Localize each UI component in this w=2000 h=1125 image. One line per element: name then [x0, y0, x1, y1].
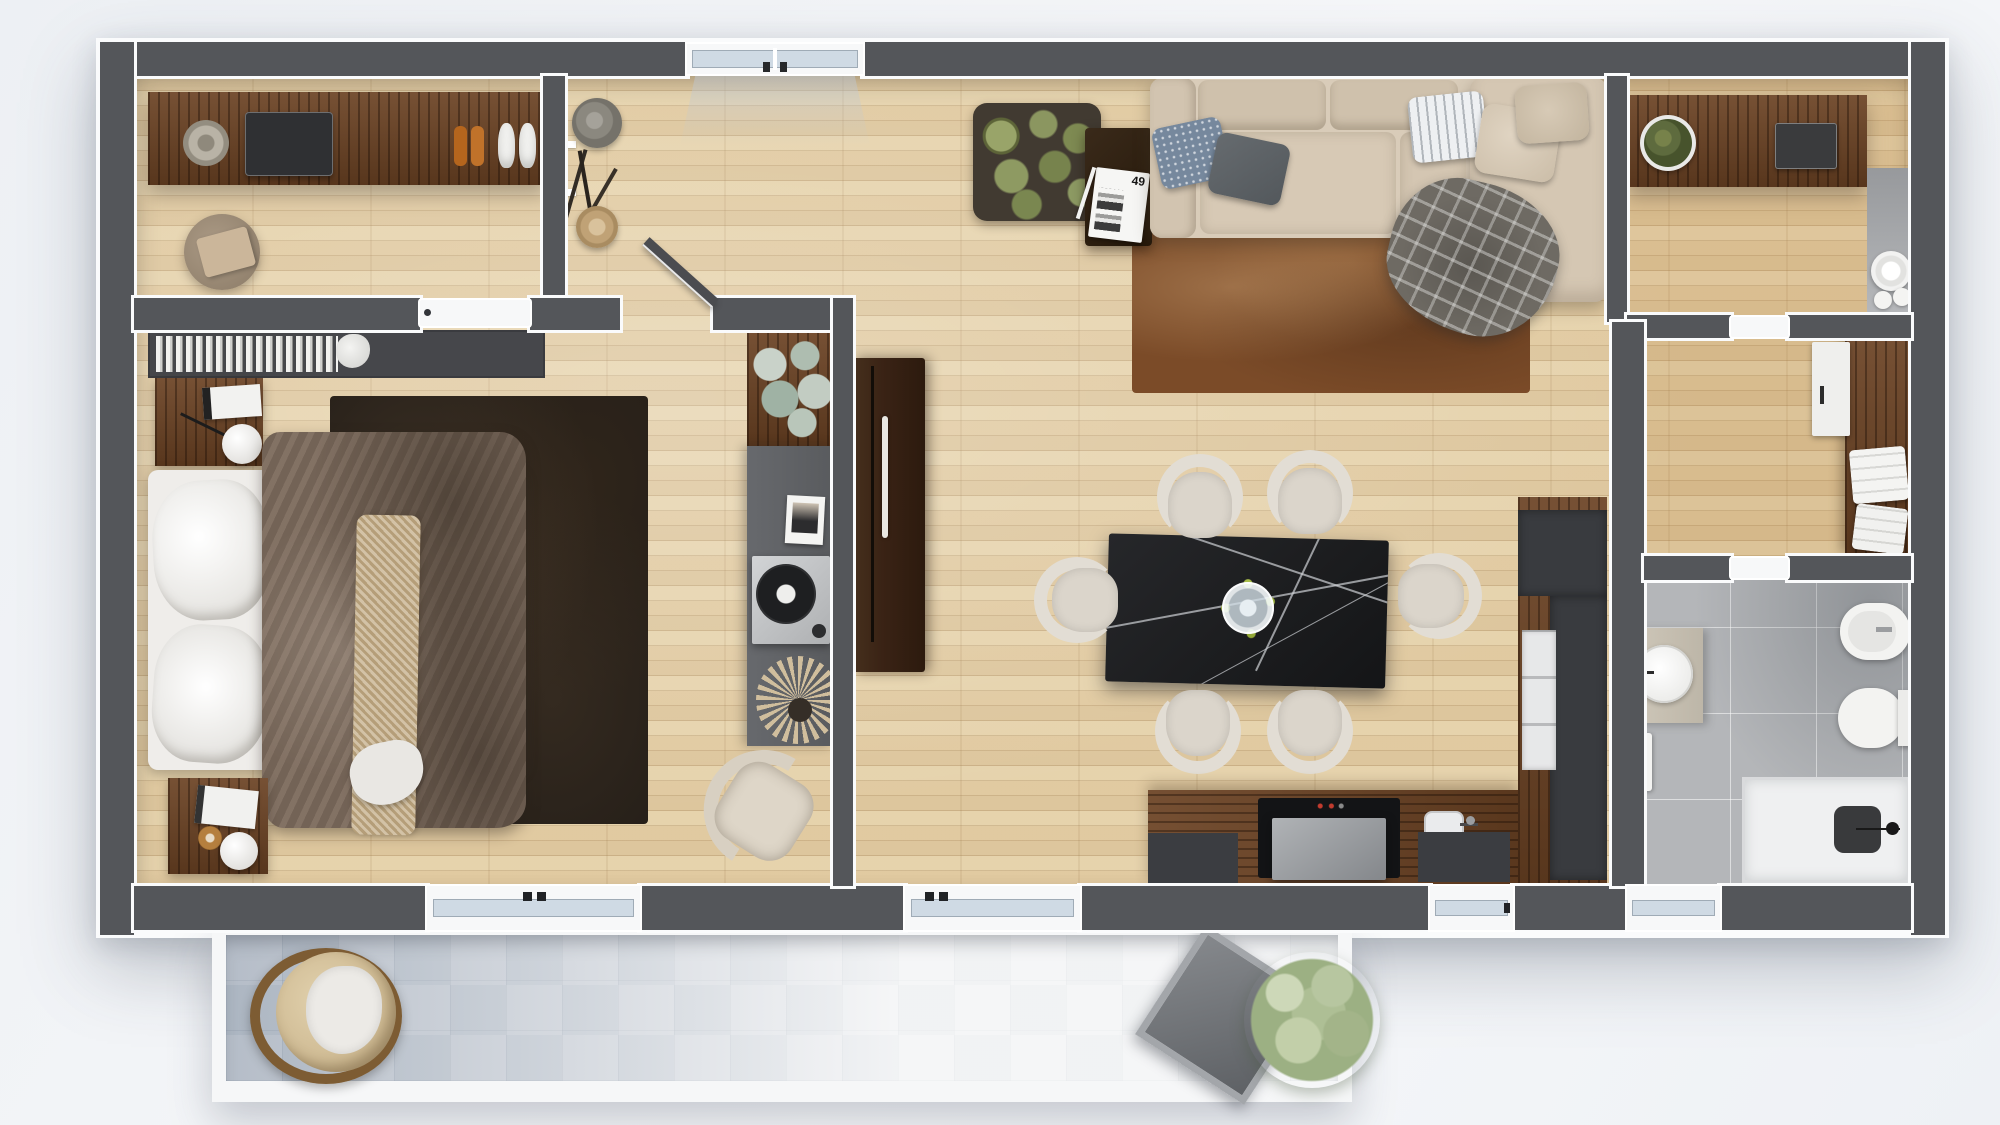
nightstand-top-book [202, 384, 262, 420]
window-handle-1 [763, 62, 770, 72]
magnolia-plant [740, 332, 840, 440]
dining-chair-top-1 [1150, 452, 1250, 548]
kitchen-faucet-base [1466, 816, 1475, 825]
chair-seat [1398, 564, 1464, 628]
wall-bedroom-north-a [134, 298, 420, 330]
hall-white-box [1812, 342, 1850, 436]
dining-chair-right [1388, 546, 1484, 646]
chair-seat [1168, 472, 1232, 538]
wall-bottom-4 [1513, 886, 1627, 930]
pampas-vase [788, 698, 812, 722]
wall-entry-divider [1607, 76, 1627, 322]
door-entry-hall [1731, 317, 1788, 337]
vinyl-record [756, 564, 816, 624]
toilet-bowl [1838, 688, 1904, 748]
wall-entry-south-b [1788, 315, 1911, 338]
door-handle-2 [939, 892, 948, 901]
kitchen-open-shelf [1522, 630, 1556, 770]
door-handle-1 [523, 892, 532, 901]
door-handle-2 [537, 892, 546, 901]
cooktop-controls [1316, 803, 1344, 809]
entry-plant [1644, 119, 1692, 167]
tall-brown-cabinet [853, 358, 925, 672]
dining-chair-top-2 [1260, 448, 1360, 544]
wall-bedroom-living-divider [833, 298, 853, 886]
window-light [680, 76, 870, 146]
tan-hat [576, 206, 618, 248]
wall-bathroom-north-b [1788, 556, 1911, 580]
nightstand-bottom-books [194, 785, 259, 829]
window-bottom-bathroom-glass [1632, 900, 1715, 916]
dressing-hat [183, 120, 229, 166]
sandal-right [471, 126, 484, 166]
window-top-mullion [773, 48, 777, 70]
kitchen-tall-unit-top [1518, 510, 1607, 596]
entry-tray [1775, 123, 1837, 169]
sneaker-left [498, 123, 515, 168]
towel-stack-2 [1851, 503, 1908, 555]
window-bottom-kitchen [1430, 886, 1513, 930]
wall-left [100, 42, 134, 935]
wall-kitchen-bath-divider [1612, 322, 1644, 886]
wall-bathroom-north-a [1644, 556, 1731, 580]
door-dressing-bedroom [420, 300, 530, 326]
nightstand-bottom-pastry [198, 826, 222, 850]
shower-head [1886, 822, 1899, 835]
window-handle-2 [780, 62, 787, 72]
extractor-hood [1272, 818, 1386, 880]
cabinet-handle [882, 416, 888, 538]
entry-cup-1 [1874, 291, 1892, 309]
wall-right [1911, 42, 1945, 935]
door-handle-1 [925, 892, 934, 901]
window-bottom-bathroom [1627, 886, 1720, 930]
kitchen-tall-unit-side [1550, 596, 1607, 880]
balcony-door-bedroom-glass [433, 899, 634, 917]
dining-chair-bottom-2 [1260, 680, 1360, 776]
chair-seat [1278, 690, 1342, 756]
dining-chair-left [1032, 550, 1128, 650]
sandal-left [454, 126, 467, 166]
toilet-tank [1898, 690, 1912, 746]
record-player-knob [812, 624, 826, 638]
towel-stack-1 [1849, 446, 1909, 505]
window-top [687, 44, 863, 74]
wall-bottom-3 [1080, 886, 1430, 930]
nightstand-bottom-lamp [220, 832, 258, 870]
hall-box-handle [1820, 386, 1824, 404]
wall-bottom-1 [134, 886, 427, 930]
magazine-title: 49 [1131, 173, 1146, 189]
bed-pillow-1 [149, 477, 272, 623]
door-hall-bathroom [1731, 558, 1788, 578]
floor-plan-canvas: 49 [0, 0, 2000, 1125]
wall-top-left [100, 42, 687, 76]
wall-dressing-divider [543, 76, 565, 298]
photo-frame [785, 495, 825, 545]
shower-tray [1742, 777, 1910, 883]
chair-seat [1278, 468, 1342, 534]
wall-bedroom-north-b [530, 298, 620, 330]
window-handle [1504, 903, 1510, 913]
marble-vein-3 [1178, 572, 1389, 688]
window-bottom-kitchen-glass [1435, 900, 1508, 916]
entry-plate [1871, 251, 1911, 291]
balcony-door-living [905, 886, 1080, 930]
nightstand-top-lamp [222, 424, 262, 464]
kitchen-worktop-right [1418, 832, 1510, 882]
cabinet-rod [871, 366, 874, 642]
bidet-tap [1876, 627, 1892, 632]
chair-seat [1166, 690, 1230, 756]
dining-chair-bottom-1 [1148, 680, 1248, 776]
pillow-beige-2 [1514, 82, 1590, 145]
balcony-bush [1244, 952, 1380, 1088]
balcony-door-living-glass [911, 899, 1074, 917]
magazine-content-blocks [1094, 187, 1125, 232]
balcony-door-bedroom [427, 886, 640, 930]
door-hinge-dot [424, 309, 431, 316]
wall-bottom-2 [640, 886, 905, 930]
kitchen-worktop-left [1148, 833, 1238, 883]
wall-bedroom-north-c [713, 298, 853, 330]
photo-frame-image [791, 502, 819, 533]
sneaker-right [519, 123, 536, 168]
wall-bottom-5 [1720, 886, 1911, 930]
magazine: 49 [1088, 167, 1150, 243]
dressing-tray [245, 112, 333, 176]
entry-cup-2 [1893, 288, 1911, 306]
gray-knit-hat [572, 98, 622, 148]
book-row [156, 336, 338, 372]
wall-top-right [863, 42, 1945, 76]
chair-seat [1052, 568, 1118, 632]
glass-vase [1222, 582, 1274, 634]
bidet [1840, 603, 1910, 660]
